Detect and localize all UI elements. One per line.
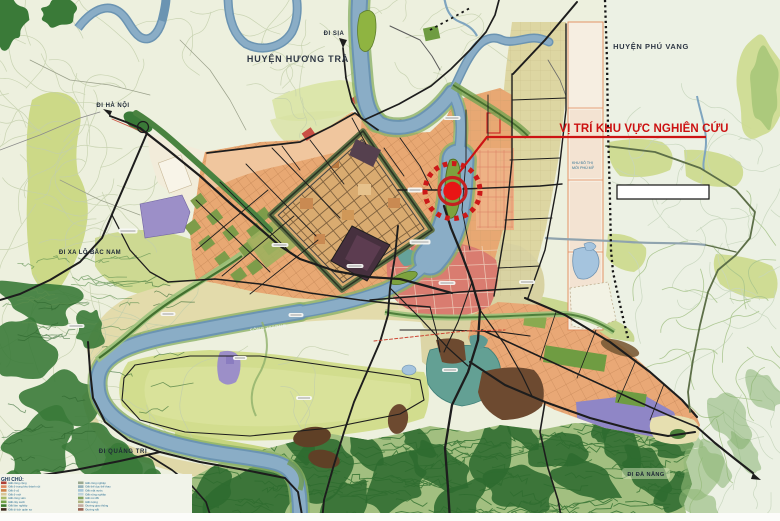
- svg-text:KHU ĐÔ THỊ: KHU ĐÔ THỊ: [572, 160, 593, 165]
- svg-text:MỚI PHÚ MỸ: MỚI PHÚ MỸ: [572, 165, 595, 170]
- svg-text:HUYỆN HƯƠNG TRÀ: HUYỆN HƯƠNG TRÀ: [247, 53, 349, 64]
- svg-text:ĐI HÀ NỘI: ĐI HÀ NỘI: [96, 101, 129, 109]
- svg-text:HUYỆN PHÚ VANG: HUYỆN PHÚ VANG: [613, 42, 689, 51]
- svg-text:Đất di tích quân sự: Đất di tích quân sự: [9, 508, 33, 512]
- svg-text:ĐI QUẢNG TRỊ: ĐI QUẢNG TRỊ: [99, 448, 148, 455]
- svg-text:ĐI ĐÀ NẴNG: ĐI ĐÀ NẴNG: [627, 471, 664, 478]
- svg-text:VỊ TRÍ KHU VỰC NGHIÊN CỨU: VỊ TRÍ KHU VỰC NGHIÊN CỨU: [559, 122, 728, 135]
- svg-text:ĐI XA LỘ BẮC NAM: ĐI XA LỘ BẮC NAM: [59, 248, 121, 256]
- svg-text:ĐI SỊA: ĐI SỊA: [324, 31, 345, 37]
- svg-text:Đường sắt: Đường sắt: [86, 507, 100, 512]
